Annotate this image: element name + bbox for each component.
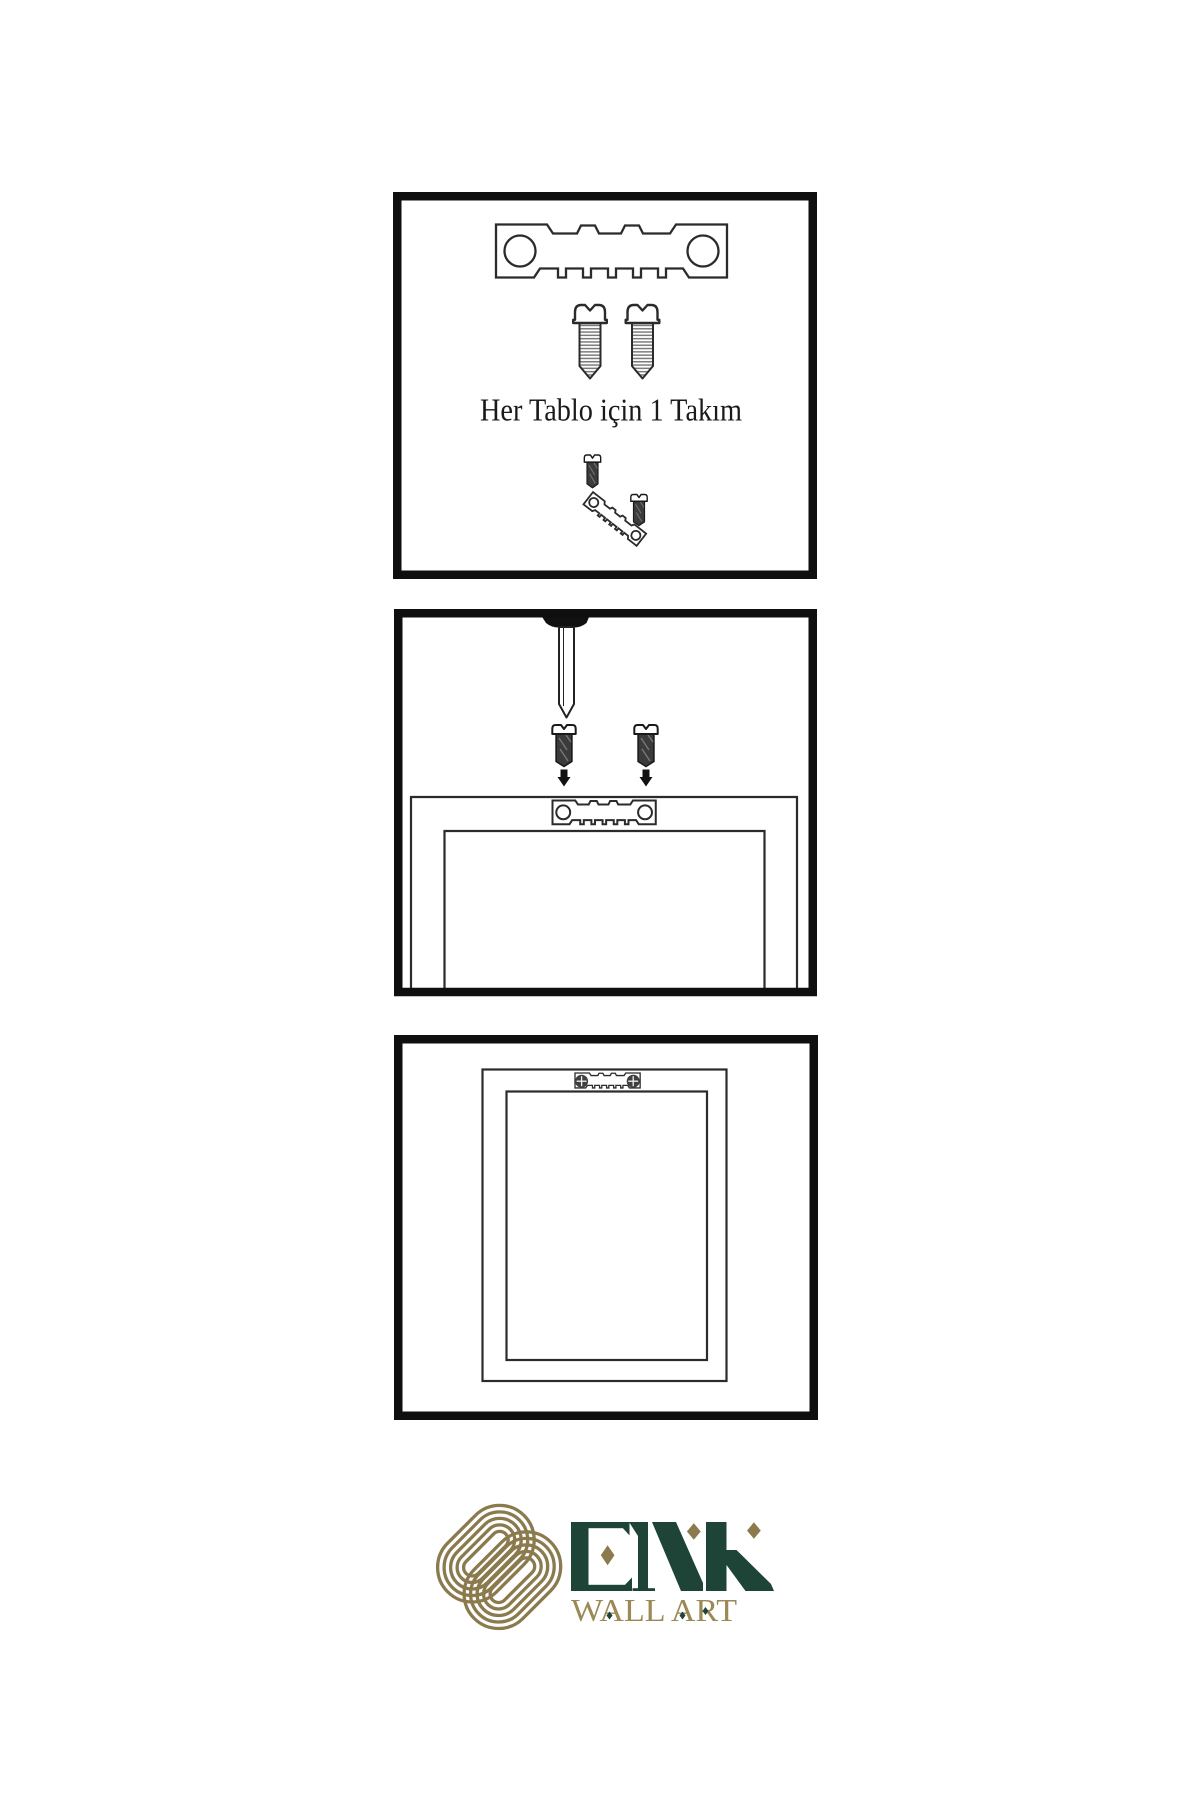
svg-text:WALL ART: WALL ART [571, 1592, 737, 1628]
svg-text:Her Tablo için 1 Takım: Her Tablo için 1 Takım [480, 392, 742, 428]
